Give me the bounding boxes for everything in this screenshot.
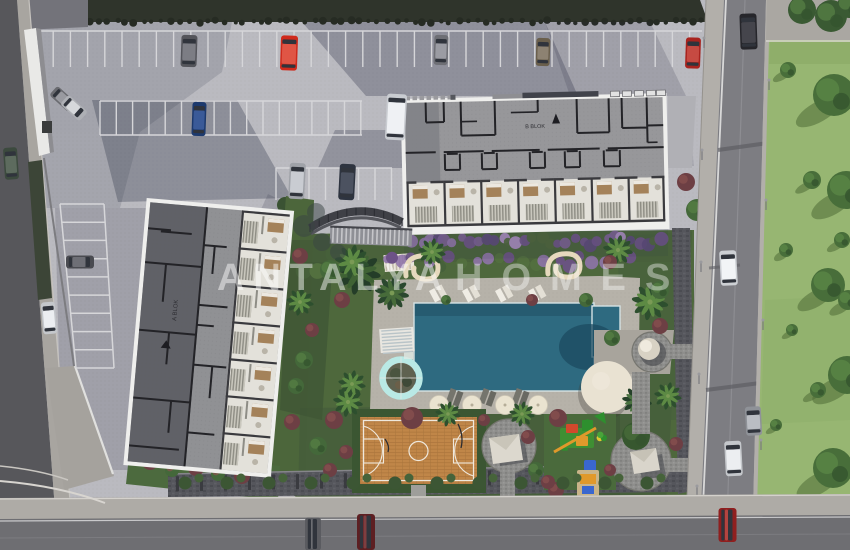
svg-text:ANTALYA: ANTALYA <box>217 257 451 299</box>
svg-text:B BLOK: B BLOK <box>525 124 545 130</box>
svg-text:HOMES: HOMES <box>455 257 689 299</box>
